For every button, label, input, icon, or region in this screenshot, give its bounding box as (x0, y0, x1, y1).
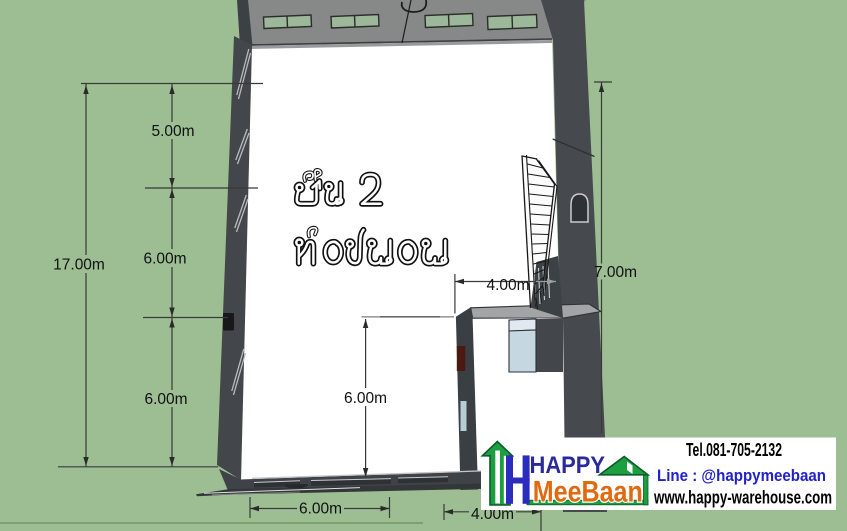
svg-text:7.00m: 7.00m (594, 264, 637, 281)
svg-text:MeeBaan: MeeBaan (533, 476, 643, 509)
svg-text:4.00m: 4.00m (486, 277, 529, 294)
svg-text:5.00m: 5.00m (151, 123, 194, 140)
svg-text:6.00m: 6.00m (299, 501, 342, 518)
svg-text:6.00m: 6.00m (144, 391, 187, 408)
svg-text:Tel.081-705-2132: Tel.081-705-2132 (686, 440, 782, 460)
svg-text:6.00m: 6.00m (143, 251, 186, 268)
svg-text:17.00m: 17.00m (53, 257, 105, 274)
svg-text:www.happy-warehouse.com: www.happy-warehouse.com (653, 488, 832, 508)
svg-text:6.00m: 6.00m (344, 390, 387, 407)
svg-text:Line : @happymeebaan: Line : @happymeebaan (657, 466, 826, 485)
